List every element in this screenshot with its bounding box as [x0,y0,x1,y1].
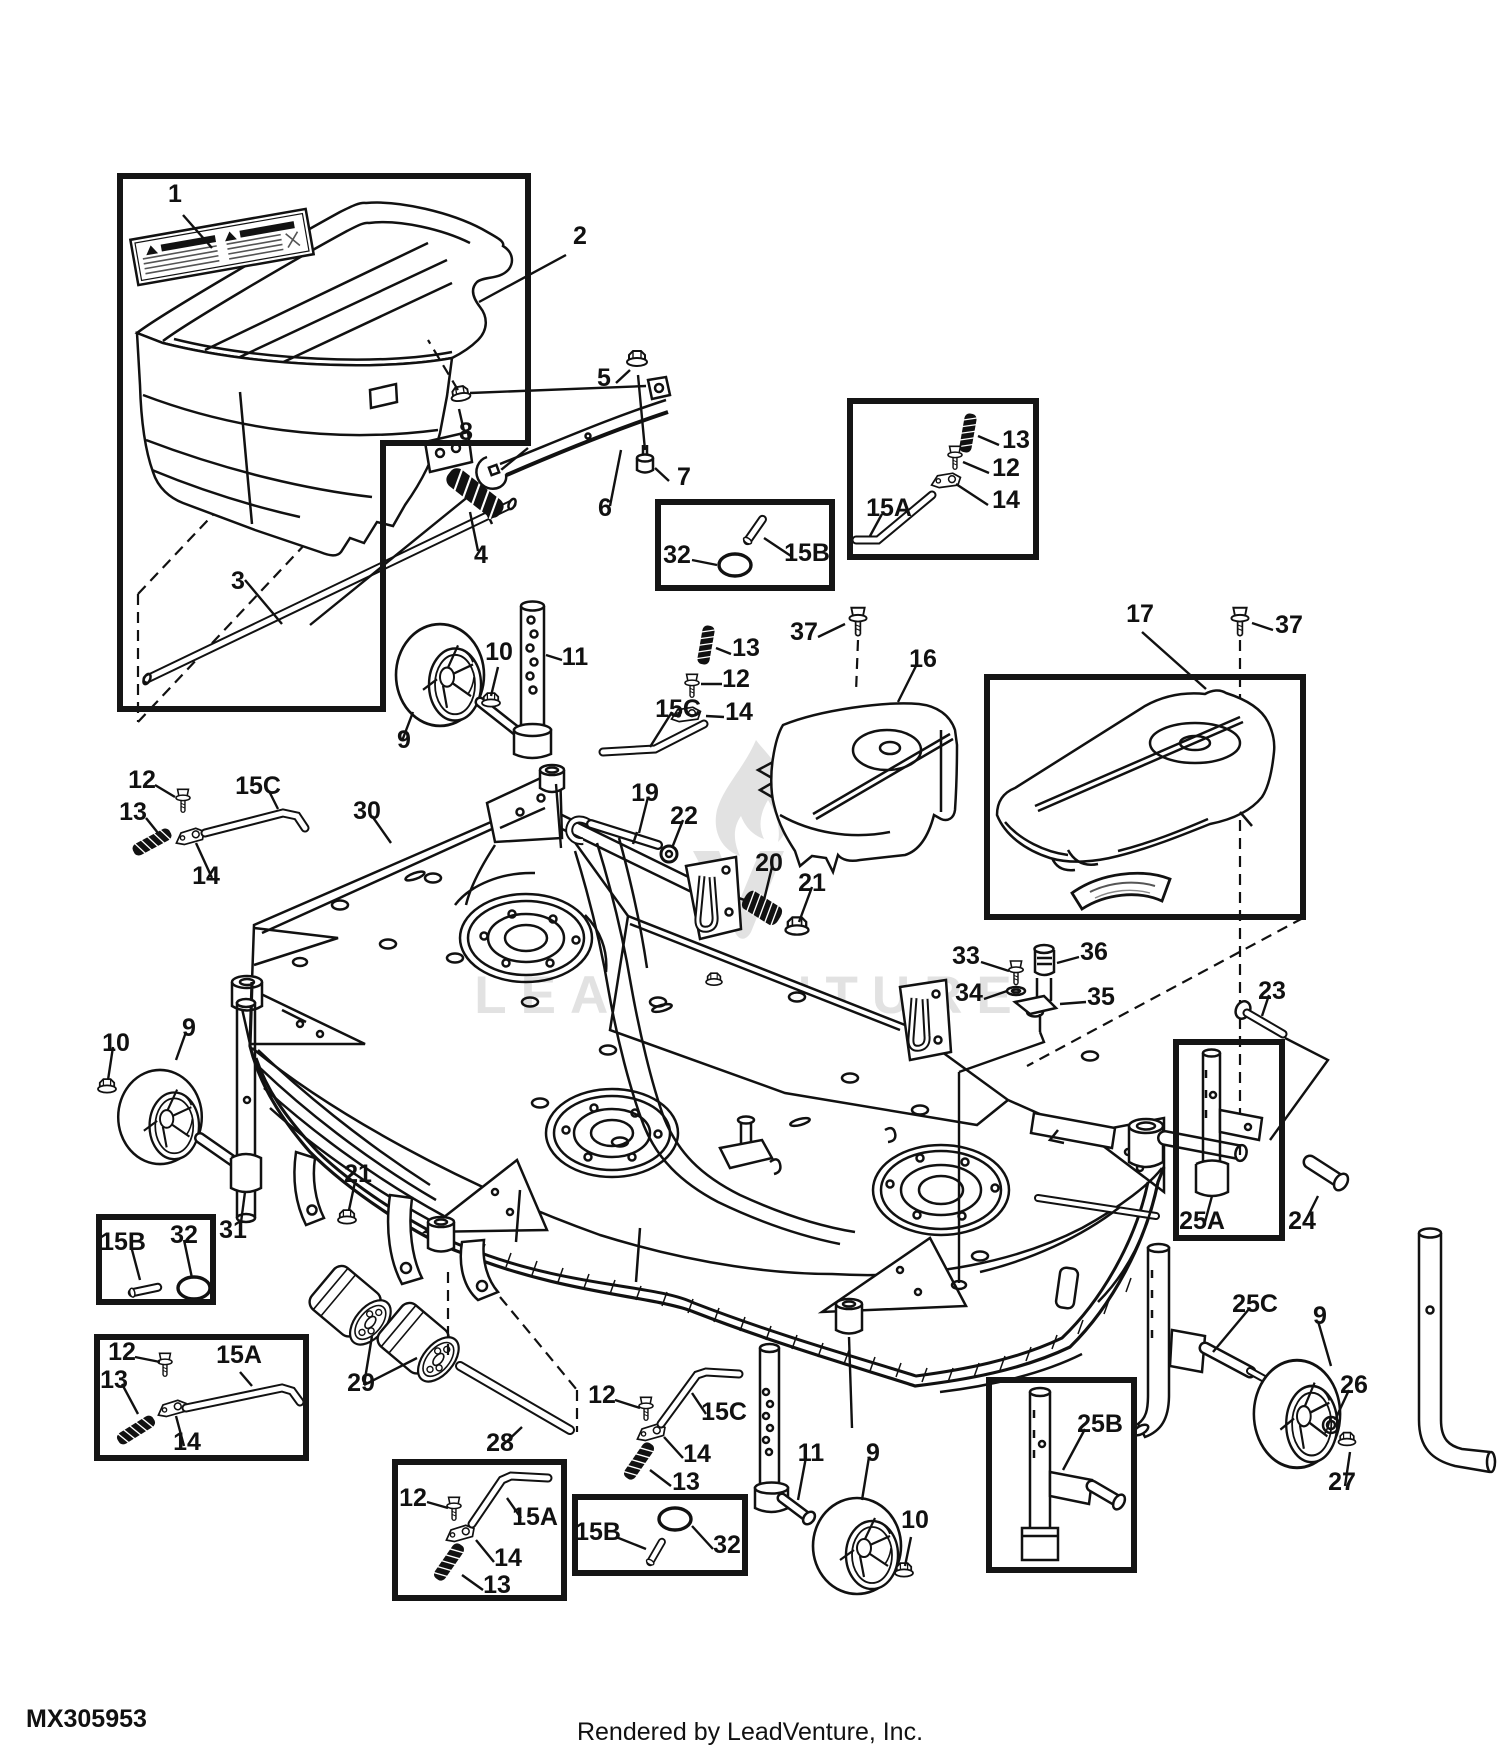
svg-text:32: 32 [663,541,691,569]
svg-text:15B: 15B [100,1228,146,1256]
svg-text:10: 10 [485,638,513,666]
svg-text:15A: 15A [216,1341,262,1369]
svg-text:9: 9 [1313,1302,1327,1330]
svg-text:9: 9 [182,1014,196,1042]
svg-text:34: 34 [955,979,983,1007]
svg-text:32: 32 [713,1531,741,1559]
svg-text:24: 24 [1288,1207,1316,1235]
svg-text:25A: 25A [1179,1207,1225,1235]
svg-text:14: 14 [992,486,1020,514]
svg-text:31: 31 [219,1216,247,1244]
svg-text:22: 22 [670,802,698,830]
svg-text:33: 33 [952,942,980,970]
svg-text:14: 14 [173,1428,201,1456]
svg-text:3: 3 [231,567,245,595]
svg-text:13: 13 [100,1366,128,1394]
svg-text:21: 21 [344,1160,372,1188]
svg-text:6: 6 [598,494,612,522]
svg-text:1: 1 [168,180,182,208]
svg-text:10: 10 [901,1506,929,1534]
svg-text:10: 10 [102,1029,130,1057]
svg-text:7: 7 [677,463,691,491]
svg-text:15A: 15A [512,1503,558,1531]
svg-text:13: 13 [1002,426,1030,454]
svg-text:12: 12 [722,665,750,693]
svg-text:MX305953: MX305953 [26,1705,147,1733]
svg-text:36: 36 [1080,938,1108,966]
svg-text:29: 29 [347,1369,375,1397]
svg-text:14: 14 [683,1440,711,1468]
svg-text:20: 20 [755,849,783,877]
svg-text:2: 2 [573,222,587,250]
svg-text:11: 11 [562,643,589,671]
svg-text:26: 26 [1340,1371,1368,1399]
svg-text:15A: 15A [866,494,912,522]
svg-text:28: 28 [486,1429,514,1457]
svg-text:32: 32 [170,1221,198,1249]
svg-text:12: 12 [108,1338,136,1366]
svg-text:27: 27 [1328,1468,1356,1496]
svg-text:13: 13 [732,634,760,662]
svg-text:Rendered by LeadVenture, Inc.: Rendered by LeadVenture, Inc. [577,1718,923,1746]
svg-text:14: 14 [494,1544,522,1572]
svg-text:14: 14 [725,698,753,726]
svg-text:19: 19 [631,779,659,807]
svg-text:14: 14 [192,862,220,890]
svg-text:15C: 15C [655,695,701,723]
svg-text:15C: 15C [701,1398,747,1426]
svg-text:13: 13 [483,1571,511,1599]
svg-text:12: 12 [128,766,156,794]
svg-text:4: 4 [474,541,488,569]
svg-text:15B: 15B [784,539,830,567]
svg-text:37: 37 [1275,611,1303,639]
svg-text:9: 9 [866,1439,880,1467]
svg-text:13: 13 [672,1468,700,1496]
svg-text:21: 21 [798,869,826,897]
svg-text:35: 35 [1087,983,1115,1011]
svg-text:16: 16 [909,645,937,673]
svg-text:8: 8 [459,418,473,446]
svg-text:13: 13 [119,798,147,826]
svg-text:9: 9 [397,726,411,754]
svg-text:15C: 15C [235,772,281,800]
svg-text:23: 23 [1258,977,1286,1005]
svg-text:5: 5 [597,364,611,392]
svg-text:17: 17 [1126,600,1154,628]
svg-text:11: 11 [798,1439,825,1467]
svg-text:12: 12 [399,1484,427,1512]
svg-text:25C: 25C [1232,1290,1278,1318]
svg-text:25B: 25B [1077,1410,1123,1438]
svg-text:37: 37 [790,618,818,646]
svg-text:15B: 15B [575,1518,621,1546]
svg-text:12: 12 [992,454,1020,482]
svg-text:12: 12 [588,1381,616,1409]
svg-text:30: 30 [353,797,381,825]
